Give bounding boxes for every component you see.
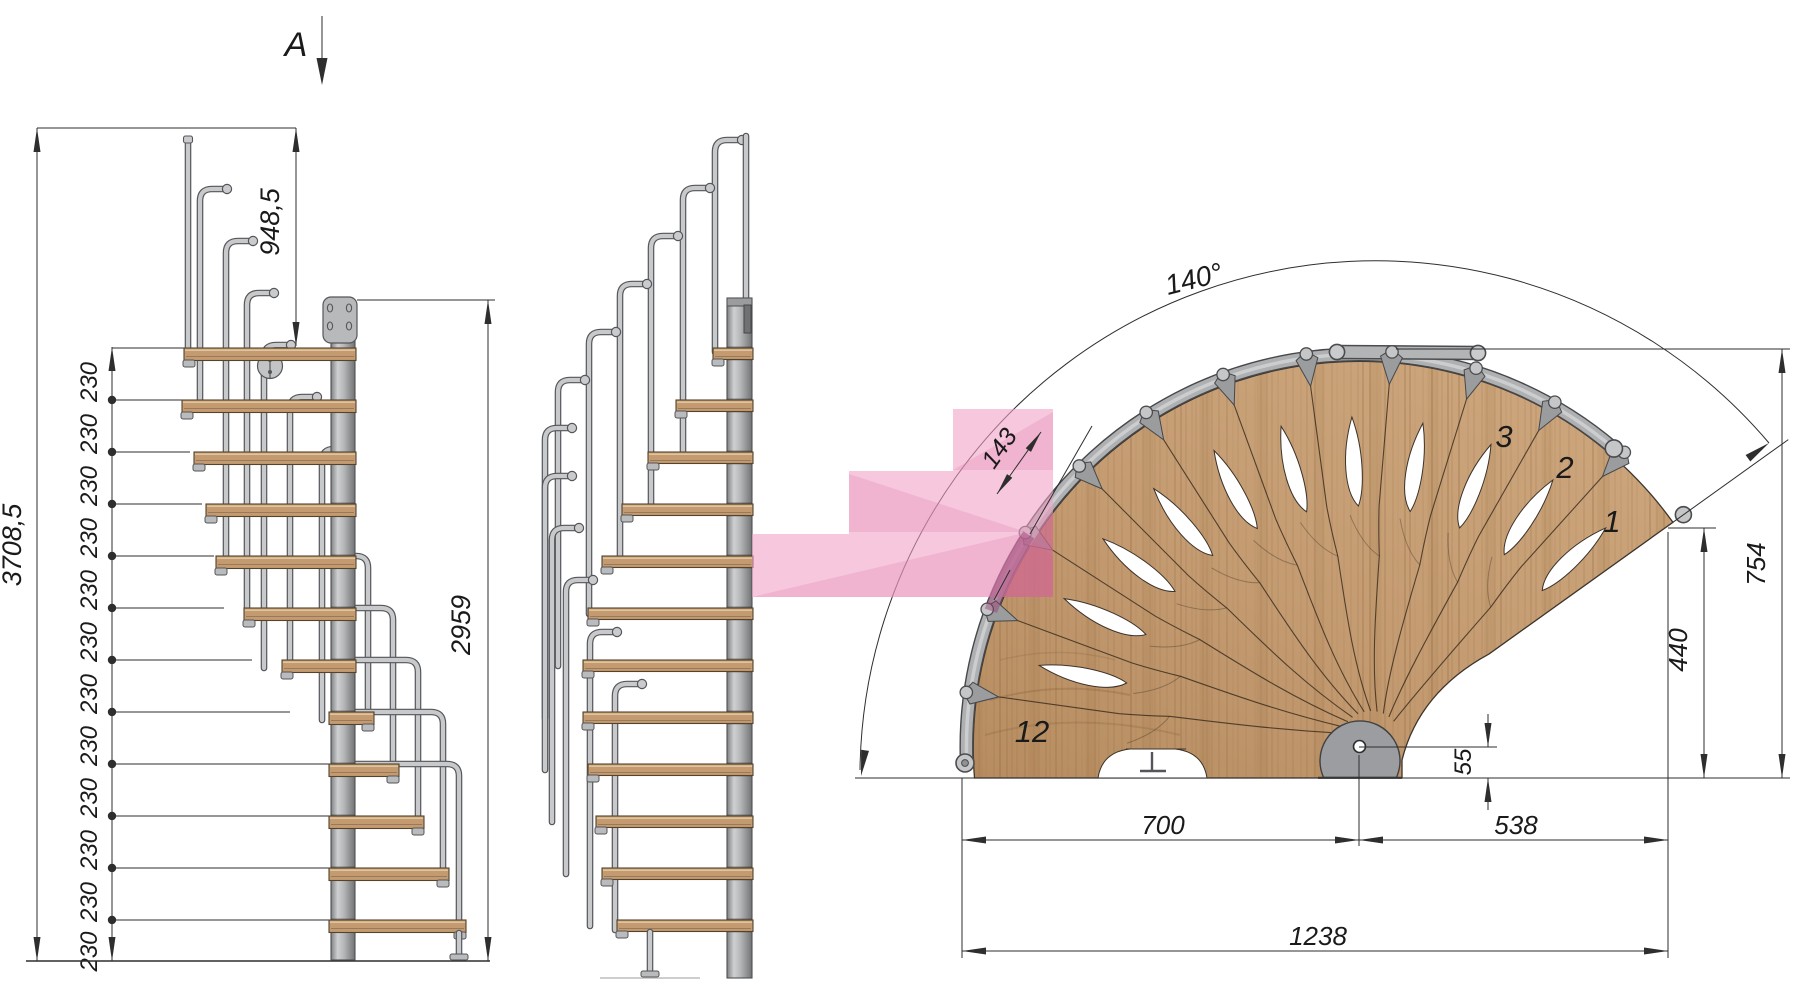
svg-text:A: A (283, 26, 308, 64)
svg-text:230: 230 (76, 881, 103, 923)
svg-text:3: 3 (1495, 419, 1512, 454)
svg-text:2959: 2959 (446, 595, 476, 656)
svg-text:538: 538 (1494, 810, 1538, 840)
svg-text:230: 230 (76, 413, 103, 455)
svg-text:700: 700 (1141, 810, 1185, 840)
svg-text:230: 230 (76, 725, 103, 767)
svg-text:55: 55 (1450, 748, 1477, 775)
svg-text:12: 12 (1015, 714, 1049, 749)
svg-text:230: 230 (76, 569, 103, 611)
svg-text:230: 230 (76, 517, 103, 559)
svg-text:230: 230 (76, 829, 103, 871)
svg-text:230: 230 (76, 361, 103, 403)
svg-text:948,5: 948,5 (255, 187, 285, 256)
svg-text:230: 230 (76, 621, 103, 663)
svg-text:1: 1 (1603, 504, 1620, 539)
svg-text:230: 230 (76, 673, 103, 715)
svg-text:2: 2 (1555, 450, 1573, 485)
svg-text:230: 230 (76, 777, 103, 819)
svg-text:754: 754 (1741, 542, 1771, 585)
svg-text:230: 230 (76, 931, 103, 973)
svg-text:1238: 1238 (1289, 921, 1347, 951)
svg-text:230: 230 (76, 465, 103, 507)
svg-text:3708,5: 3708,5 (0, 503, 27, 587)
